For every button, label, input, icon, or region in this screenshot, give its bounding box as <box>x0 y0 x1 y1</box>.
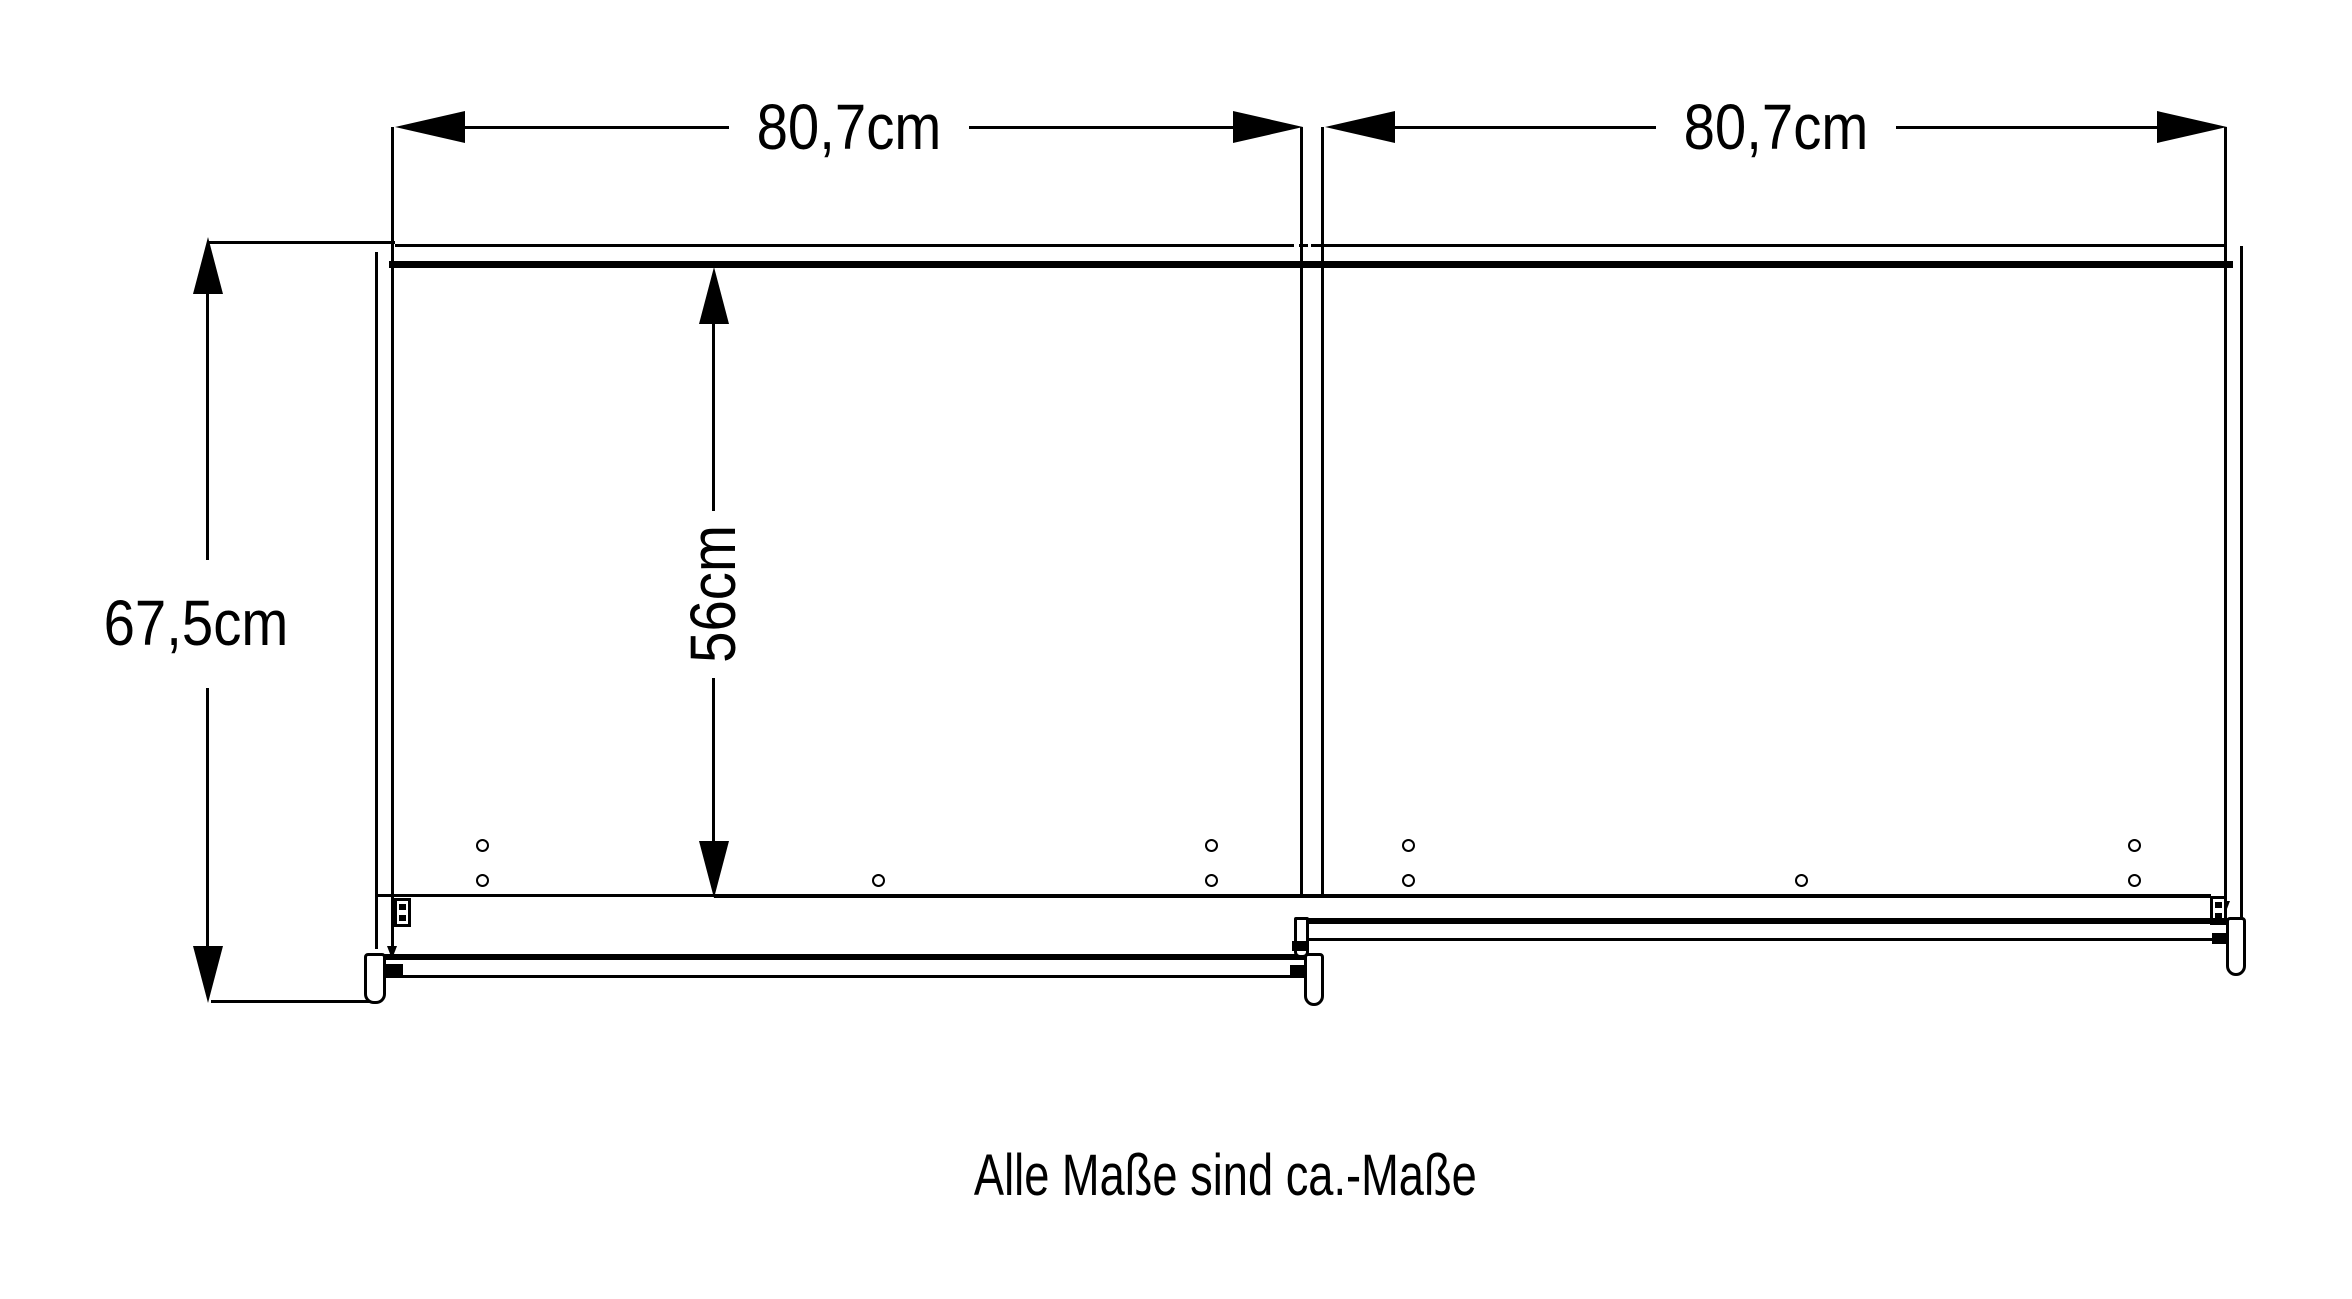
interior-front-edge-left <box>376 894 716 897</box>
extension-line-bottom <box>211 1000 379 1003</box>
dimension-value: 56cm <box>676 525 750 663</box>
back-edge-thin-dash <box>1299 244 1308 247</box>
interior-front-edge-right <box>714 894 2211 898</box>
dimension-line <box>206 291 209 560</box>
dimension-value: 80,7cm <box>757 111 942 143</box>
drill-hole <box>1205 839 1218 852</box>
drill-hole <box>1402 874 1415 887</box>
center-divider-right <box>1321 127 1324 897</box>
dimension-label: 80,7cm <box>729 111 969 143</box>
back-edge-thin-left <box>395 244 1294 247</box>
caption: Alle Maße sind ca.-Maße <box>825 1142 1625 1209</box>
arrow-left-icon <box>395 111 465 143</box>
drill-hole <box>1402 839 1415 852</box>
caption-text: Alle Maße sind ca.-Maße <box>974 1142 1477 1209</box>
back-edge-thin-right <box>1311 244 2227 247</box>
door-track-line <box>1307 938 2230 941</box>
arrow-right-icon <box>2157 111 2227 143</box>
dimension-line <box>969 126 1233 129</box>
roller-fitting <box>386 964 403 975</box>
dimension-value: 80,7cm <box>1684 111 1869 143</box>
roller-fitting <box>1290 965 1306 976</box>
center-divider-left <box>1300 127 1303 897</box>
side-panel-left-outer <box>375 252 378 949</box>
roller-fitting <box>2212 933 2228 944</box>
dimension-line <box>1896 126 2157 129</box>
door-end-cap-left <box>364 953 386 1004</box>
drill-hole <box>872 874 885 887</box>
roller-fitting <box>1292 941 1306 951</box>
arrow-left-icon <box>1325 111 1395 143</box>
side-panel-right-outer <box>2240 246 2243 923</box>
dimension-label: 80,7cm <box>1656 111 1896 143</box>
extension-line-top <box>208 241 395 244</box>
arrow-up-icon <box>193 237 223 294</box>
back-panel-thick-edge <box>389 261 2233 268</box>
dimension-line <box>206 688 209 948</box>
door-track-line <box>384 975 1308 978</box>
dimension-label: 56cm <box>676 516 750 673</box>
dimension-label: 67,5cm <box>60 586 332 660</box>
arrow-down-icon <box>193 946 223 1003</box>
arrow-right-icon <box>1233 111 1303 143</box>
dimension-value: 67,5cm <box>104 586 289 660</box>
drill-hole <box>2128 874 2141 887</box>
dimension-top-right: 80,7cm <box>1325 111 2227 143</box>
dimension-line <box>465 126 729 129</box>
door-end-cap-left <box>1294 917 1309 958</box>
door-panel-edge <box>1307 918 2230 924</box>
dimension-line <box>712 321 715 511</box>
door-end-cap-right <box>2226 917 2246 976</box>
guide-plate-left <box>394 898 411 927</box>
arrow-up-icon <box>699 267 729 324</box>
drill-hole <box>476 874 489 887</box>
door-end-cap-right <box>1304 953 1324 1006</box>
side-panel-left-inner <box>391 127 394 952</box>
drill-hole <box>476 839 489 852</box>
drill-hole <box>2128 839 2141 852</box>
drill-hole <box>1795 874 1808 887</box>
dimension-drawing: 80,7cm 80,7cm 67,5cm 56cm <box>0 0 2352 1299</box>
dimension-top-left: 80,7cm <box>395 111 1303 143</box>
dimension-line <box>1395 126 1656 129</box>
dimension-line <box>712 678 715 846</box>
door-panel-edge <box>384 954 1308 960</box>
drill-hole <box>1205 874 1218 887</box>
arrow-down-icon <box>699 841 729 898</box>
